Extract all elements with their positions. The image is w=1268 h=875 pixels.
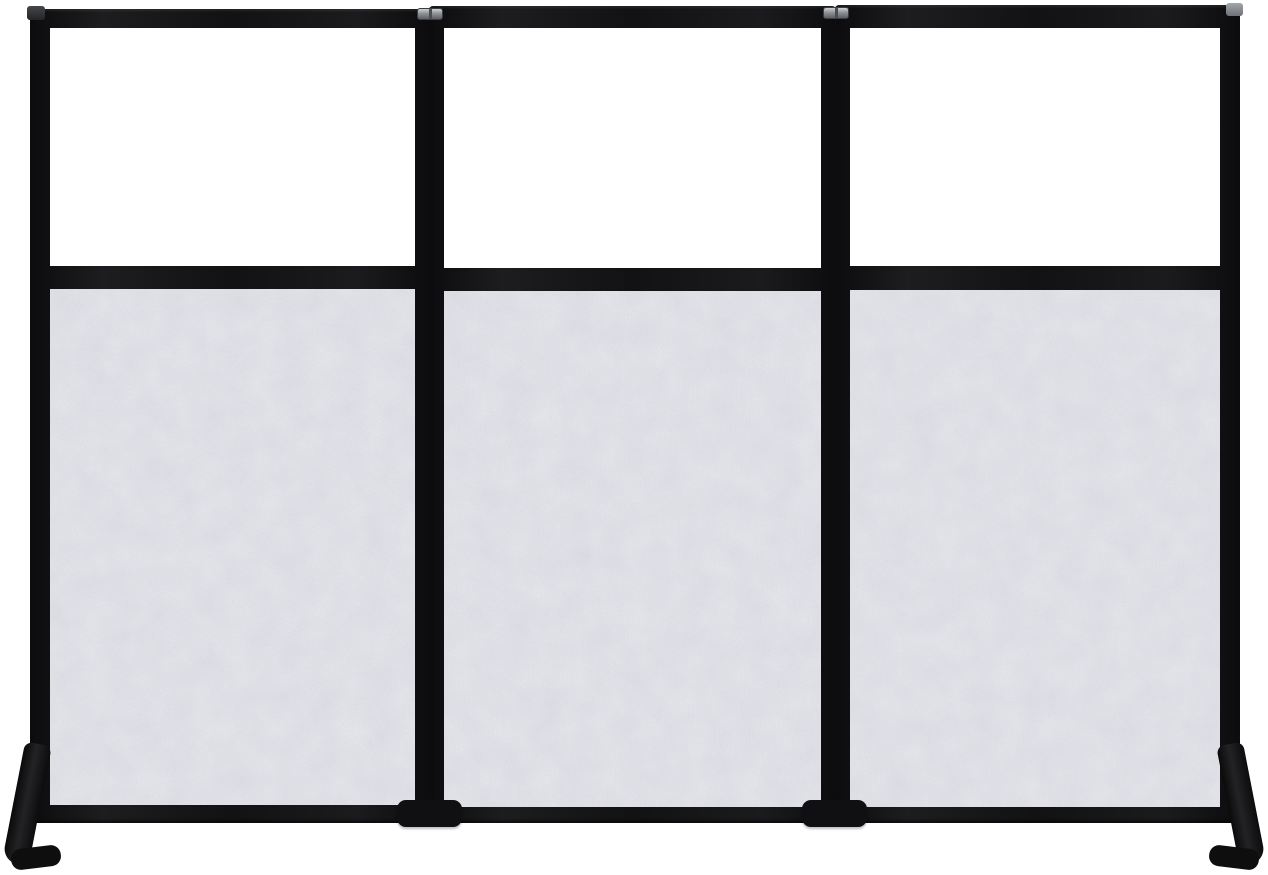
felt-texture [444,291,821,807]
felt-texture [50,289,415,805]
hinge-seam [429,9,432,19]
product-photo [0,0,1268,875]
felt-texture [850,290,1220,807]
hinge-right-junction [823,7,849,19]
right-panel-frame [835,5,1240,823]
right-panel-clear-window [850,28,1220,266]
center-panel-felt [444,291,821,807]
left-panel-clear-window [50,28,415,266]
hinge-left-junction [417,8,443,20]
corner-cap-top-right [1226,3,1243,16]
hinge-seam [835,8,838,18]
center-foot-left-junction [397,800,462,827]
felt-grain [444,291,821,807]
center-panel-frame [429,6,836,823]
corner-cap-top-left [27,6,45,20]
felt-grain [50,289,415,805]
left-panel-frame [30,9,430,823]
center-panel-clear-window [444,28,821,268]
right-panel-felt [850,290,1220,807]
center-foot-right-junction [802,800,867,827]
felt-grain [850,290,1220,807]
left-panel-felt [50,289,415,805]
